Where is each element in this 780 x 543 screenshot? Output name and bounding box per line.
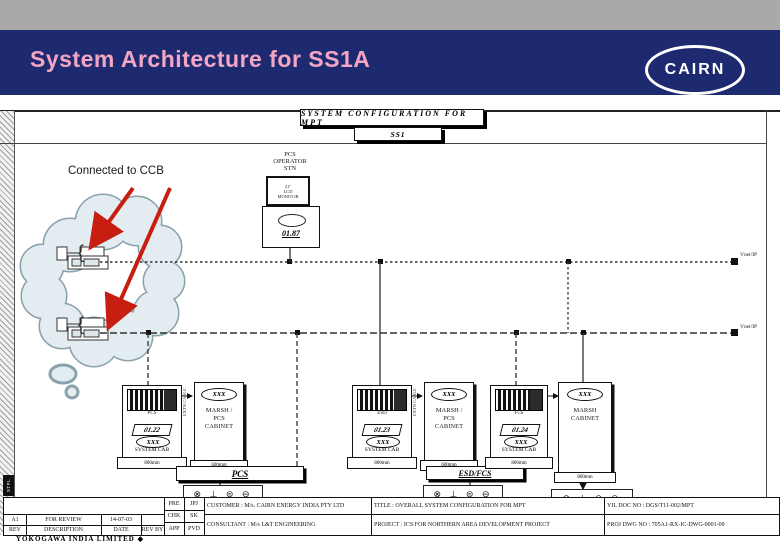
console-ellipse [278, 214, 306, 227]
op-line1: PCS [258, 151, 322, 158]
tb-col-desc: DESCRIPTION [26, 525, 102, 535]
op-line2: OPERATOR [258, 158, 322, 165]
tb-col-rev: REV [4, 525, 27, 535]
operator-console: 01.87 [262, 206, 320, 248]
tb-customer-label: CUSTOMER : [207, 503, 243, 509]
monitor-line3: MONITOR [278, 194, 299, 199]
lcd-monitor: 21" LCD MONITOR [266, 176, 310, 206]
rack-graphic [357, 389, 407, 411]
tb-col-date: DATE [101, 525, 142, 535]
company-footer: YOKOGAWA INDIA LIMITED ◆ [16, 535, 144, 543]
tb-project-label: PROJECT : [374, 522, 402, 528]
tb-yil-doc: YIL DOC NO : DGS/T11-002/MPT [604, 498, 780, 515]
console-tag: 01.87 [263, 229, 319, 238]
tb-app-v: PVD [184, 522, 205, 535]
cabinet-caption: SYSTEM CAB [123, 447, 181, 453]
tb-consultant-value: M/s L&T ENGINEERING [251, 522, 316, 528]
rack-caption: FCS [491, 411, 547, 416]
rack-caption: ESD [353, 411, 411, 416]
cabinet-base: 800mm [347, 457, 417, 469]
marsh-l1: MARSH / [195, 407, 243, 415]
tb-customer: CUSTOMER : M/s. CAIRN ENERGY INDIA PTY L… [204, 498, 372, 515]
margin-stamp: STPL [3, 475, 14, 496]
cabinet-width: 800mm [144, 461, 159, 466]
tb-customer-text: CUSTOMER : M/s. CAIRN ENERGY INDIA PTY L… [204, 503, 344, 509]
operator-station-heading: PCS OPERATOR STN [258, 151, 322, 172]
tb-consultant-text: CONSULTANT : M/s L&T ENGINEERING [204, 522, 315, 528]
tb-title-label: TITLE : [374, 503, 394, 509]
brace-bottom: { [78, 314, 84, 334]
marshalling-cabinet-esd: XXX MARSH / PCS CABINET [424, 382, 474, 462]
cabinet-width: 800mm [511, 461, 526, 466]
cabinet-tag: 01.23 [362, 424, 403, 436]
marsh-label: MARSH CABINET [559, 407, 611, 423]
marsh-label: MARSH / PCS CABINET [425, 407, 473, 431]
marsh-l2: PCS [425, 415, 473, 423]
cabinet-base: 800mm [485, 457, 553, 469]
marsh-l2: CABINET [559, 415, 611, 423]
tb-customer-value: M/s. CAIRN ENERGY INDIA PTY LTD [244, 503, 344, 509]
vnet-bus-2 [100, 329, 738, 336]
extn-cable-note: EXTN CABLE [413, 388, 418, 416]
bus2-label: Vnet/IP [740, 324, 757, 330]
tb-app: APP [164, 522, 185, 535]
esd-fcs-bar-label: ESD/FCS [459, 469, 492, 478]
marsh-base: 800mm [554, 472, 616, 483]
tb-project-text: PROJECT : ICS FOR NORTHERN AREA DEVELOPM… [371, 522, 550, 528]
marsh-l3: CABINET [425, 423, 473, 431]
tb-title-value: OVERALL SYSTEM CONFIGURATION FOR MPT [395, 503, 525, 509]
marsh-oval: XXX [567, 388, 603, 401]
marsh-l1: MARSH / [425, 407, 473, 415]
marsh-l2: PCS [195, 415, 243, 423]
vnet-bus-1 [100, 258, 738, 265]
op-line3: STN [258, 165, 322, 172]
tb-consultant-label: CONSULTANT : [207, 522, 249, 528]
marshalling-cabinet-right: XXX MARSH CABINET [558, 382, 612, 474]
pcs-bar-label: PCS [232, 469, 249, 479]
tb-consultant: CONSULTANT : M/s L&T ENGINEERING [204, 514, 372, 535]
marsh-oval: XXX [431, 388, 467, 401]
title-block: A1 FOR REVIEW 14-07-03 REV DESCRIPTION D… [3, 497, 780, 536]
tb-col-revby: REV BY [141, 525, 165, 535]
cloud-note: Connected to CCB [68, 165, 164, 177]
rack-graphic [127, 389, 177, 411]
marsh-oval: XXX [201, 388, 237, 401]
rack-graphic [495, 389, 543, 411]
cabinet-caption: SYSTEM CAB [491, 447, 547, 453]
marsh-label: MARSH / PCS CABINET [195, 407, 243, 431]
tb-blank [4, 498, 165, 515]
system-cabinet-fcs: FCS 01.24 XXX SYSTEM CAB [490, 385, 548, 459]
brace-top: { [78, 242, 84, 262]
margin-stamp-text: STPL [6, 479, 11, 492]
tb-title-text: TITLE : OVERALL SYSTEM CONFIGURATION FOR… [371, 503, 525, 509]
pcs-network-bar: PCS [176, 466, 304, 481]
marsh-width: 800mm [577, 475, 592, 480]
system-cabinet-pcs: PCS 01.22 XXX SYSTEM CAB [122, 385, 182, 459]
tb-title: TITLE : OVERALL SYSTEM CONFIGURATION FOR… [371, 498, 605, 515]
rack-caption: PCS [123, 411, 181, 416]
tb-proj-dwg: PROJ DWG NO : 705A1-RX-IC-DWG-0001-09 [604, 514, 780, 535]
marsh-l1: MARSH [559, 407, 611, 415]
cabinet-tag: 01.24 [500, 424, 541, 436]
marsh-l3: CABINET [195, 423, 243, 431]
tb-project: PROJECT : ICS FOR NORTHERN AREA DEVELOPM… [371, 514, 605, 535]
cabinet-width: 800mm [374, 461, 389, 466]
extn-cable-note: EXTN CABLE [183, 388, 188, 416]
cabinet-tag: 01.22 [132, 424, 173, 436]
bus1-label: Vnet/IP [740, 252, 757, 258]
system-cabinet-esd: ESD 01.23 XXX SYSTEM CAB [352, 385, 412, 459]
marshalling-cabinet-pcs: XXX MARSH / PCS CABINET [194, 382, 244, 462]
tb-project-value: ICS FOR NORTHERN AREA DEVELOPMENT PROJEC… [404, 522, 550, 528]
cabinet-caption: SYSTEM CAB [353, 447, 411, 453]
